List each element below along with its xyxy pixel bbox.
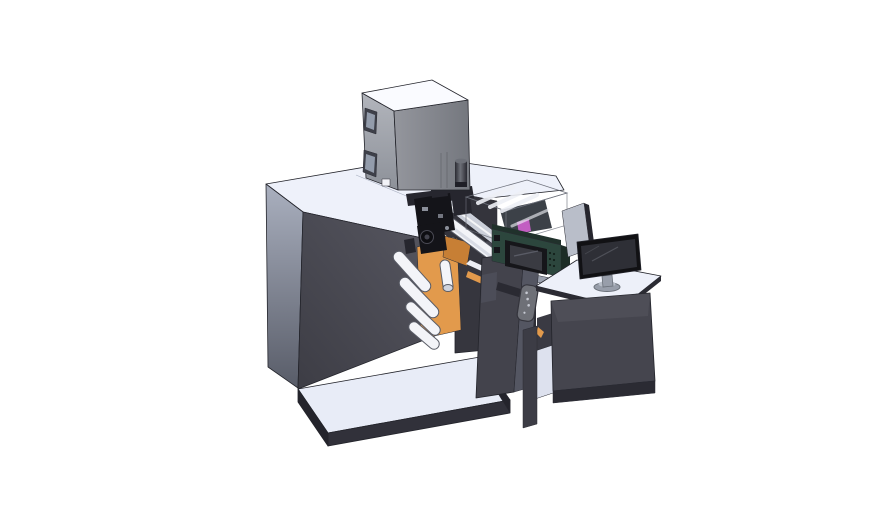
mech-highlight-2 [438, 214, 443, 218]
machine-scene: Machine base platform Main machine cabin… [0, 0, 888, 522]
mech-left-bit [404, 238, 416, 254]
vent-dot [549, 264, 551, 266]
vent-dot [553, 265, 555, 267]
vent-dot [553, 259, 555, 261]
mech-highlight-3 [445, 226, 449, 230]
cad-render-canvas: Machine base platform Main machine cabin… [0, 0, 888, 522]
post-cap [455, 159, 467, 164]
vent-dot [549, 252, 551, 254]
monitor-stand-neck [602, 275, 613, 287]
control-button-1[interactable] [494, 235, 500, 241]
supply-box: Top supply box [362, 80, 470, 190]
box-window-1-inset [366, 112, 375, 130]
mech-right-block [452, 197, 472, 216]
post-band [455, 182, 467, 187]
desk-left-leg [523, 326, 537, 428]
roller-5 [445, 265, 448, 286]
support-post: Support post [455, 159, 467, 187]
mech-hub-inner [425, 235, 430, 240]
control-button-2[interactable] [494, 247, 500, 253]
vent-dot [553, 253, 555, 255]
roller-5-endcap [443, 285, 453, 292]
vent-dot [549, 258, 551, 260]
column-notch [481, 272, 497, 303]
box-corner-plate [382, 179, 390, 186]
mech-highlight-1 [422, 207, 428, 211]
cabinet-left-face [266, 184, 303, 388]
